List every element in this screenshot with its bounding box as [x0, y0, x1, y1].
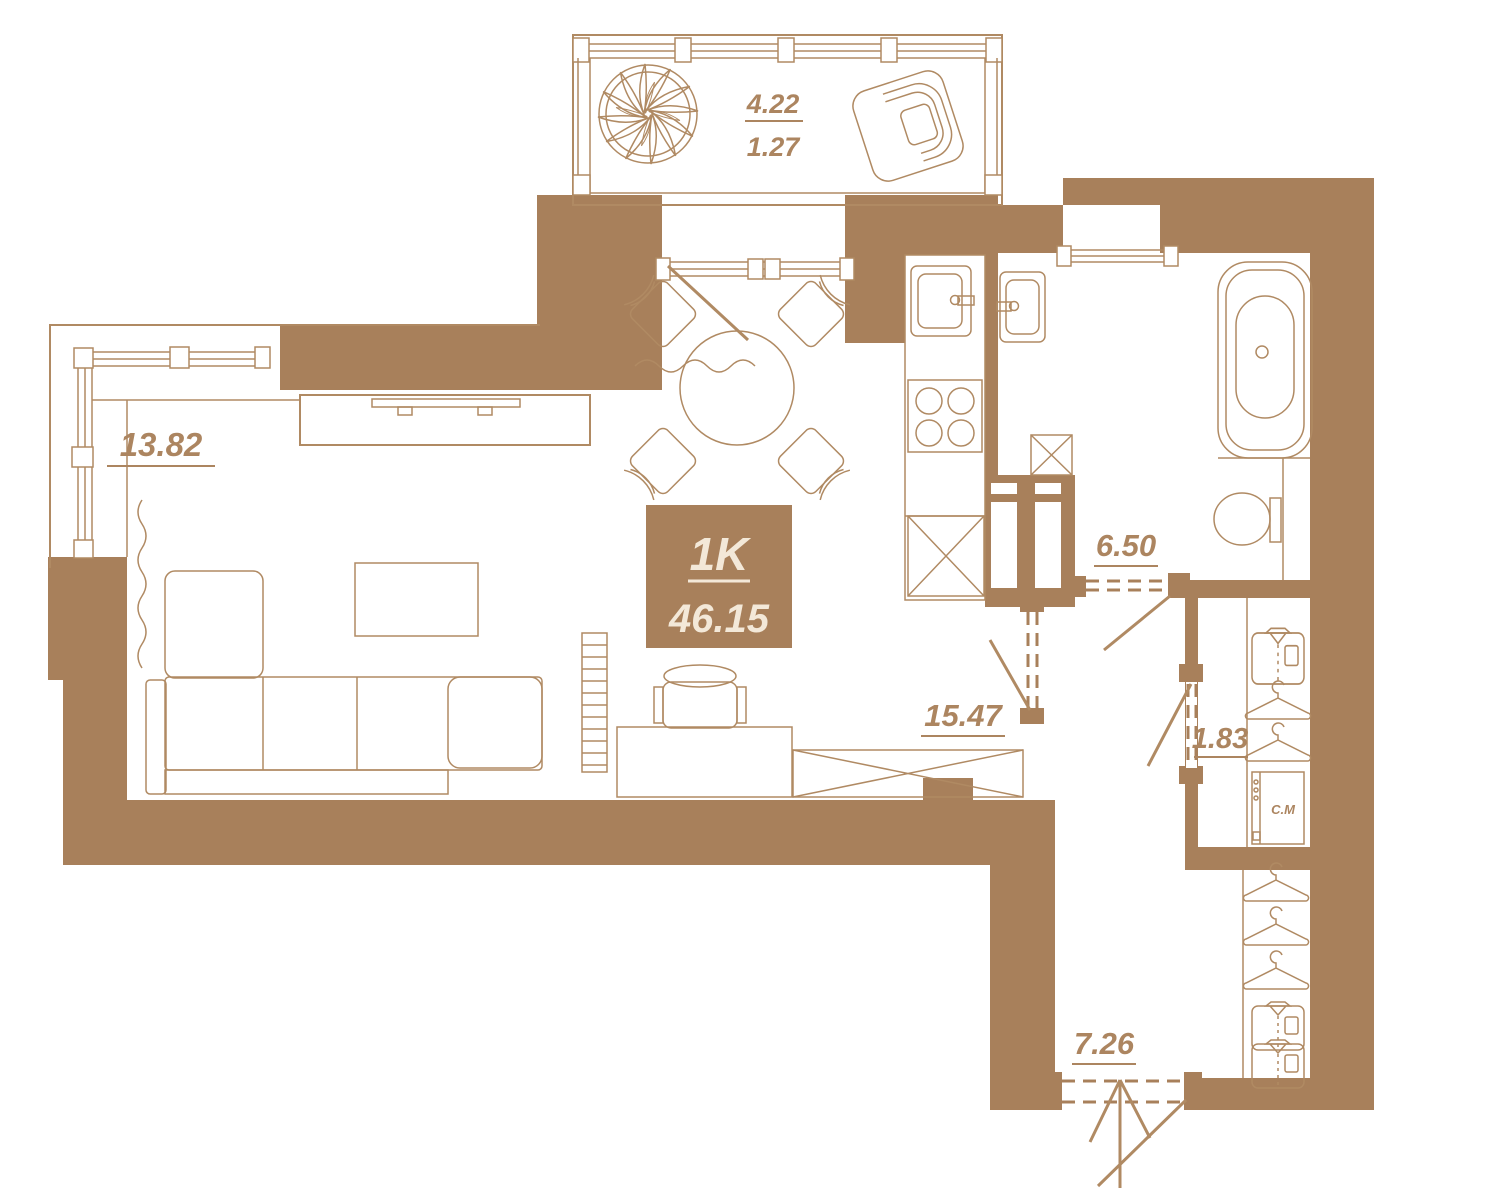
- tv-console: [300, 395, 590, 445]
- shirt-icon: [1252, 628, 1304, 684]
- hallway-area-label: 7.26: [1074, 1026, 1135, 1061]
- kitchen-sink: [911, 266, 974, 336]
- kitchen-cabinet-x: [908, 516, 984, 596]
- floor-plan: 4.22 1.27: [0, 0, 1510, 1200]
- ladder-shelf: [582, 633, 607, 772]
- desk: [617, 727, 792, 797]
- coffee-table: [355, 563, 478, 636]
- sofa: [146, 571, 542, 794]
- entrance-arrow-icon: [1090, 1080, 1150, 1188]
- kitchen-corridor-door: [990, 612, 1037, 710]
- toilet: [1214, 493, 1281, 545]
- kitchen-counter: [905, 255, 985, 600]
- total-area-label: 46.15: [668, 597, 770, 641]
- hanger-icon: [1243, 951, 1308, 989]
- kitchen-living-area-label: 15.47: [924, 698, 1003, 733]
- hallway: 7.26: [1062, 863, 1309, 1188]
- desk-chair: [654, 665, 746, 728]
- window-post: [573, 38, 589, 62]
- wardrobe-area-label: 1.83: [1192, 723, 1248, 755]
- balcony-reduced-area-label: 1.27: [747, 132, 802, 162]
- balcony: 4.22 1.27: [573, 35, 1002, 205]
- door-leaf: [668, 266, 748, 340]
- living-room-area-label: 13.82: [120, 426, 203, 463]
- bathroom-door: [1086, 581, 1170, 650]
- entrance-door: [1062, 1080, 1186, 1188]
- tv: [372, 399, 520, 407]
- washing-machine-label: С.М: [1271, 802, 1296, 817]
- curtain-wave: [138, 500, 146, 668]
- armchair: [849, 67, 967, 185]
- hanger-icon: [1245, 681, 1310, 719]
- floor-plan-page: 4.22 1.27: [0, 0, 1510, 1200]
- hanger-icon: [1245, 723, 1310, 761]
- stove: [908, 380, 982, 452]
- bathroom-area-label: 6.50: [1096, 528, 1156, 563]
- low-cabinet-x: [793, 750, 1023, 797]
- plant: [598, 64, 698, 164]
- hanger-icon: [1243, 907, 1308, 945]
- wardrobe-room: С.М 1.83: [1192, 598, 1311, 847]
- unit-type-label: 1K: [690, 528, 752, 580]
- washing-machine: С.М: [1252, 772, 1304, 844]
- bathroom-sink: [997, 272, 1045, 342]
- unit-badge: 1K 46.15: [646, 505, 792, 648]
- living-room: 13.82: [107, 395, 607, 794]
- shirt-icon: [1252, 1002, 1304, 1050]
- duct-cabinet-x: [1031, 435, 1072, 475]
- balcony-area-label: 4.22: [746, 89, 800, 119]
- bathtub: [1218, 262, 1312, 458]
